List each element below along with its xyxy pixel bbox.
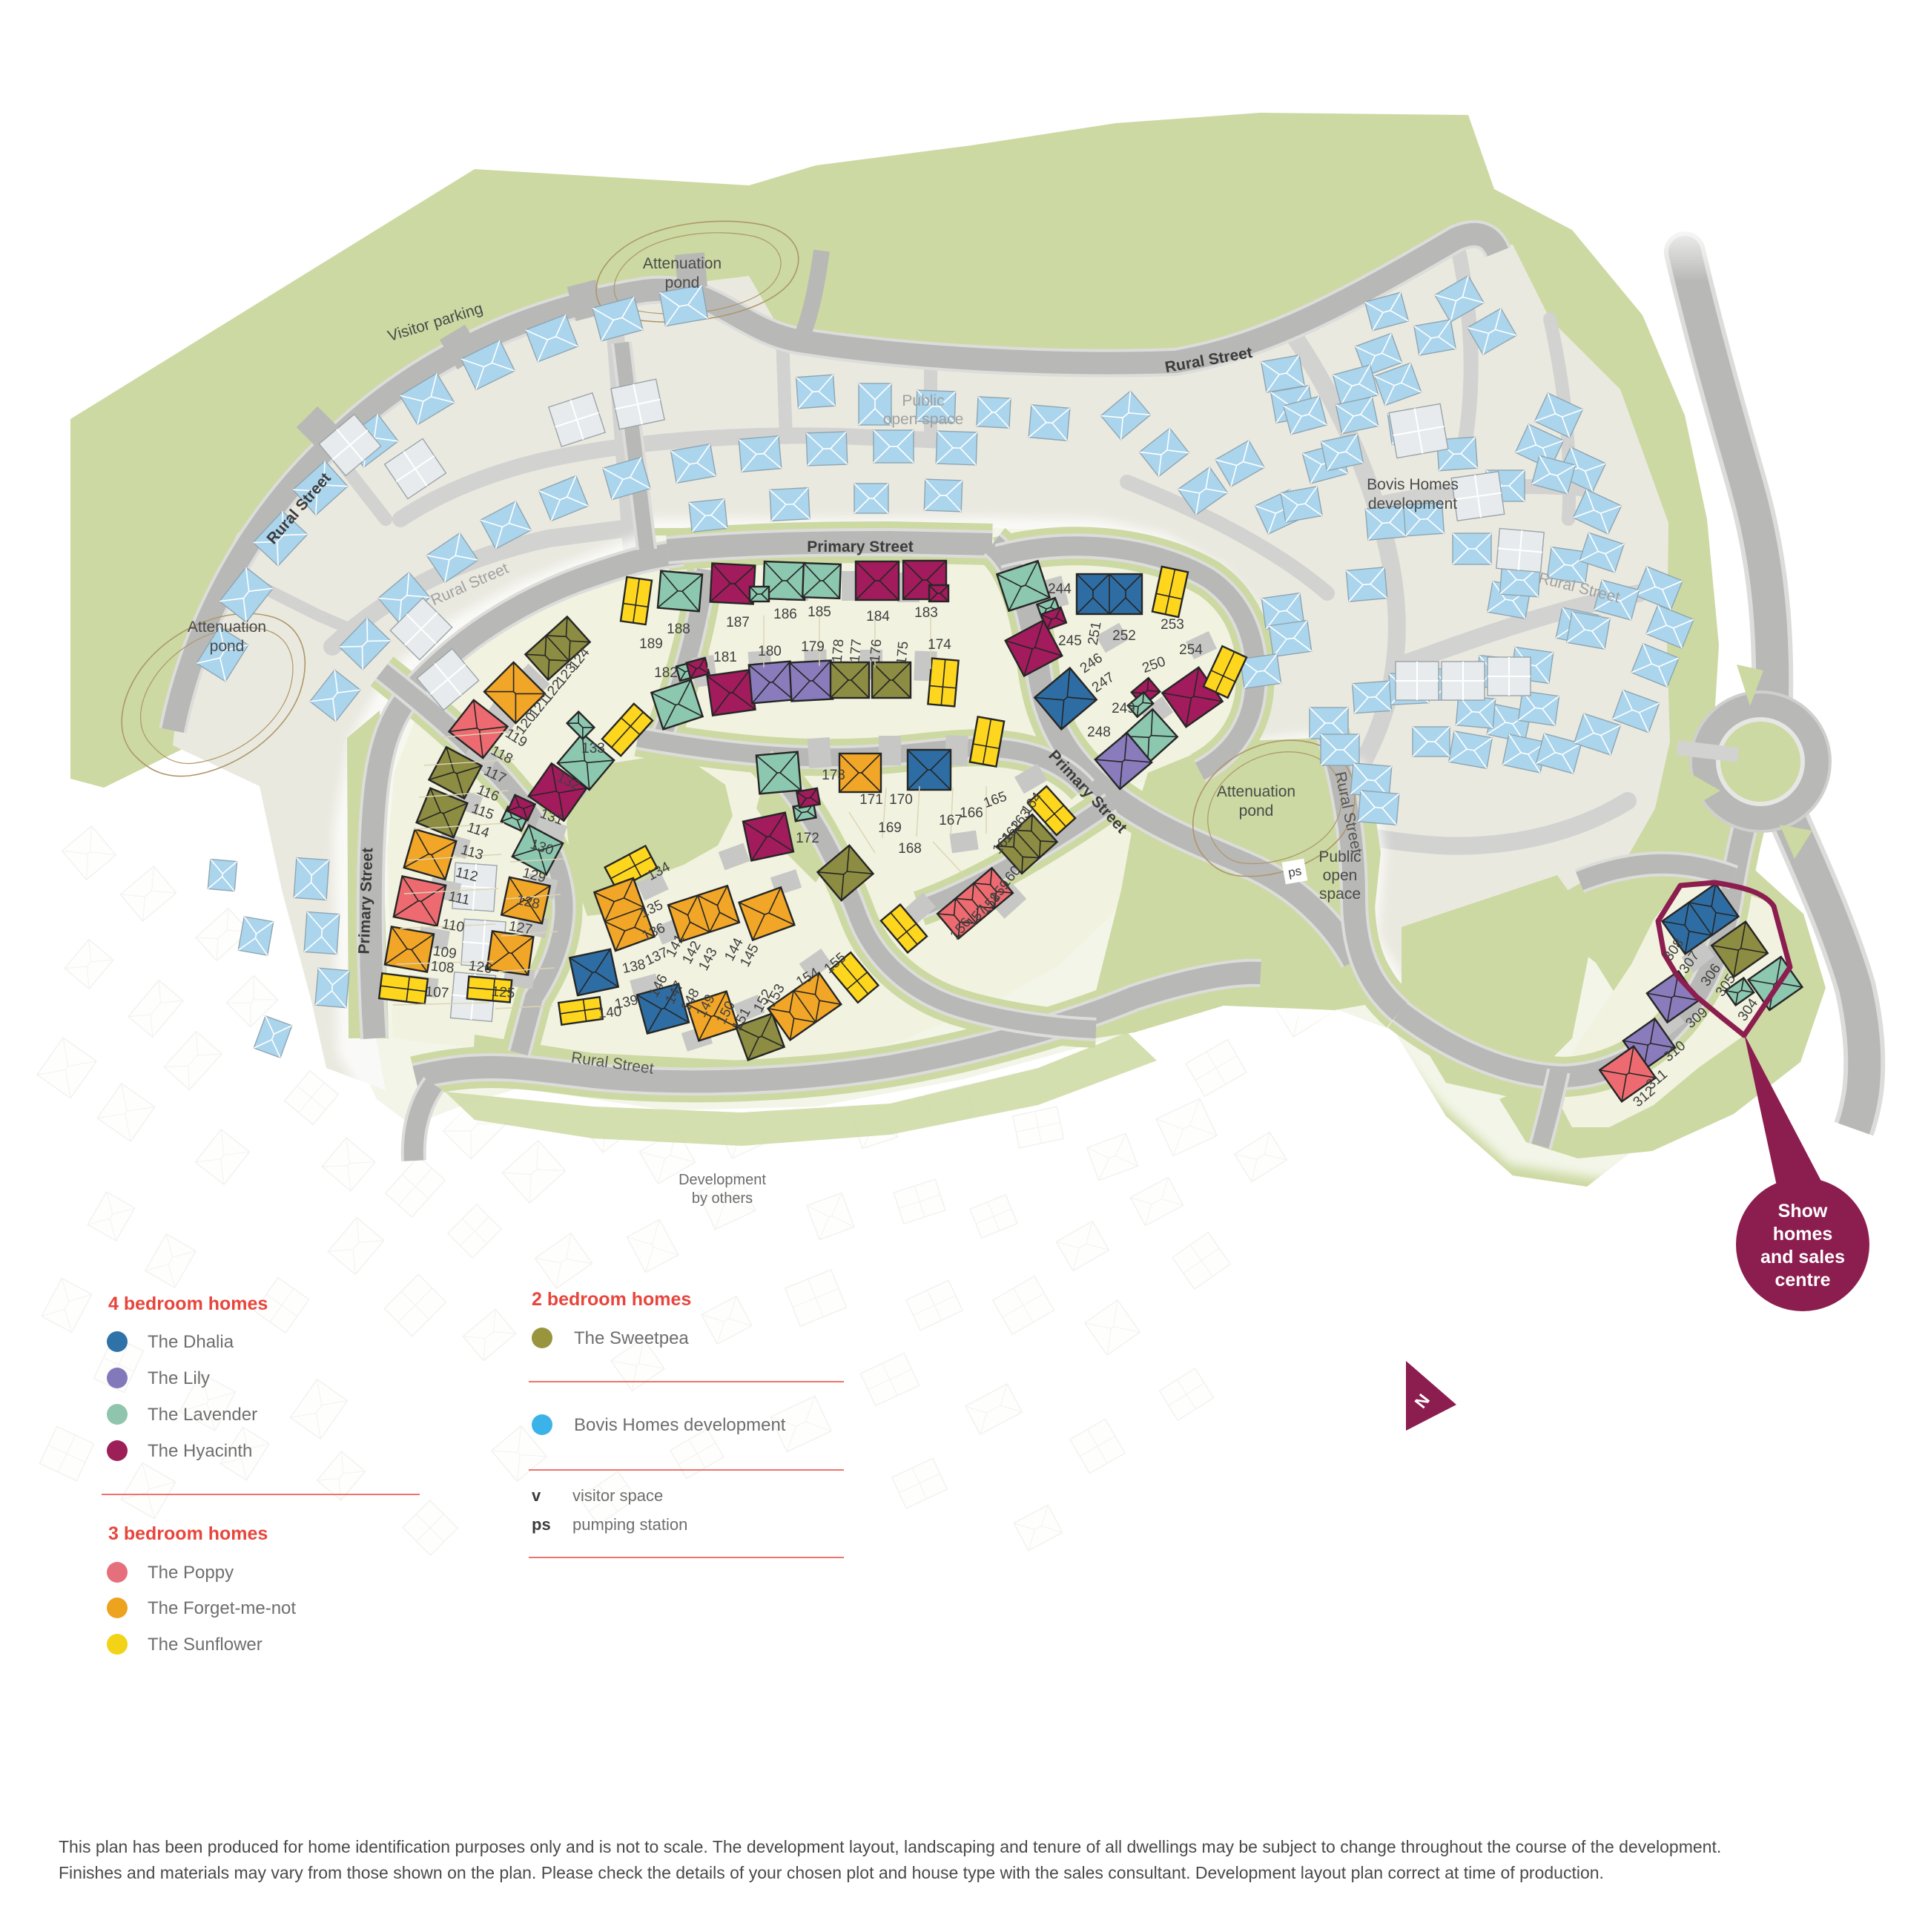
svg-text:181: 181: [713, 650, 737, 665]
svg-text:171: 171: [859, 792, 883, 808]
svg-text:Public: Public: [1318, 848, 1361, 866]
svg-text:183: 183: [914, 605, 938, 621]
svg-text:Attenuation: Attenuation: [643, 255, 722, 272]
svg-text:Bovis Homes development: Bovis Homes development: [574, 1415, 786, 1435]
svg-text:pumping station: pumping station: [572, 1515, 687, 1534]
svg-text:ps: ps: [532, 1515, 551, 1534]
svg-text:space: space: [1319, 886, 1361, 903]
svg-text:168: 168: [898, 841, 922, 857]
svg-text:177: 177: [848, 639, 865, 663]
svg-text:The Lily: The Lily: [148, 1368, 210, 1388]
svg-text:Public: Public: [902, 392, 944, 409]
svg-text:248: 248: [1087, 725, 1111, 740]
svg-text:178: 178: [830, 639, 848, 663]
svg-text:by others: by others: [692, 1190, 753, 1207]
svg-text:252: 252: [1112, 628, 1136, 644]
svg-text:centre: centre: [1775, 1270, 1830, 1290]
svg-text:The Hyacinth: The Hyacinth: [148, 1441, 252, 1461]
svg-text:169: 169: [878, 820, 902, 836]
svg-text:pond: pond: [210, 638, 245, 655]
svg-text:v: v: [532, 1486, 541, 1505]
svg-text:174: 174: [928, 637, 951, 653]
svg-text:182: 182: [654, 665, 678, 681]
svg-text:The Sunflower: The Sunflower: [148, 1635, 263, 1655]
svg-text:pond: pond: [1239, 802, 1274, 820]
svg-text:166: 166: [960, 805, 983, 821]
svg-text:Finishes and materials may var: Finishes and materials may vary from tho…: [59, 1863, 1604, 1882]
svg-text:The Poppy: The Poppy: [148, 1563, 234, 1583]
svg-text:172: 172: [796, 831, 819, 846]
svg-text:133: 133: [581, 741, 605, 756]
svg-text:Attenuation: Attenuation: [1217, 783, 1295, 800]
svg-text:The Lavender: The Lavender: [148, 1405, 257, 1425]
svg-text:The Dhalia: The Dhalia: [148, 1332, 234, 1352]
svg-text:249: 249: [1112, 701, 1135, 716]
svg-text:140: 140: [598, 1004, 622, 1022]
svg-text:125: 125: [491, 984, 515, 1002]
svg-text:homes: homes: [1773, 1224, 1833, 1244]
svg-text:3 bedroom homes: 3 bedroom homes: [108, 1523, 268, 1544]
svg-text:245: 245: [1058, 633, 1082, 649]
svg-text:and sales: and sales: [1760, 1247, 1845, 1267]
svg-text:The Sweetpea: The Sweetpea: [574, 1328, 689, 1348]
svg-text:4 bedroom homes: 4 bedroom homes: [108, 1293, 268, 1314]
svg-text:179: 179: [801, 639, 825, 655]
svg-text:Development: Development: [679, 1172, 766, 1188]
svg-text:2 bedroom homes: 2 bedroom homes: [532, 1289, 691, 1310]
svg-text:173: 173: [822, 768, 845, 783]
svg-text:186: 186: [773, 607, 797, 622]
svg-text:253: 253: [1161, 617, 1184, 633]
svg-text:open: open: [1323, 867, 1358, 884]
svg-text:Attenuation: Attenuation: [188, 619, 266, 636]
svg-text:126: 126: [468, 958, 493, 977]
svg-text:189: 189: [639, 636, 663, 652]
svg-text:170: 170: [889, 792, 913, 808]
svg-text:109: 109: [432, 943, 458, 962]
svg-text:175: 175: [894, 641, 912, 665]
svg-text:180: 180: [758, 644, 782, 659]
svg-text:176: 176: [868, 639, 885, 663]
svg-text:visitor space: visitor space: [572, 1486, 663, 1505]
svg-text:Primary Street: Primary Street: [807, 538, 914, 555]
svg-text:167: 167: [939, 813, 963, 828]
svg-text:This plan has been produced fo: This plan has been produced for home ide…: [59, 1837, 1721, 1856]
svg-text:254: 254: [1179, 642, 1203, 658]
svg-text:244: 244: [1048, 581, 1072, 597]
svg-text:107: 107: [425, 984, 449, 1001]
svg-text:Show: Show: [1778, 1201, 1828, 1221]
svg-text:188: 188: [667, 622, 690, 637]
svg-text:Bovis Homes: Bovis Homes: [1367, 476, 1459, 493]
svg-text:184: 184: [866, 609, 890, 624]
svg-text:ps: ps: [1287, 864, 1303, 880]
svg-text:185: 185: [808, 604, 831, 620]
svg-text:The Forget-me-not: The Forget-me-not: [148, 1598, 296, 1618]
svg-text:187: 187: [726, 615, 750, 630]
svg-text:pond: pond: [665, 274, 700, 291]
svg-text:development: development: [1368, 495, 1457, 512]
svg-text:open space: open space: [883, 411, 964, 428]
